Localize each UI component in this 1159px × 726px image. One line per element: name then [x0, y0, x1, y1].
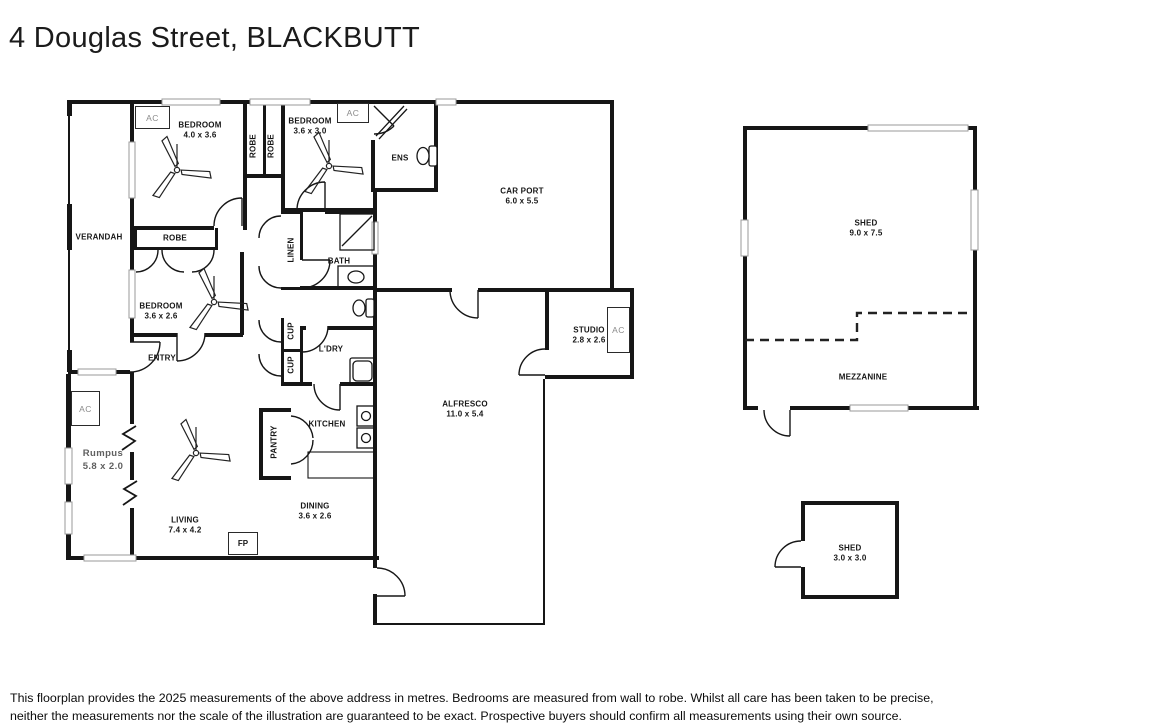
fireplace-box: FP — [228, 532, 258, 555]
room-label-bedroom2: BEDROOM3.6 x 3.0 — [288, 117, 331, 136]
windows — [65, 99, 978, 561]
kitchen-sink — [357, 406, 375, 426]
room-label-pantry: PANTRY — [269, 425, 279, 458]
wall-openings — [122, 426, 137, 505]
room-label-robe2: ROBE — [266, 134, 276, 158]
ac-label: AC — [347, 108, 360, 118]
room-label-cup1: CUP — [286, 322, 296, 340]
room-label-kitchen: KITCHEN — [309, 419, 346, 429]
room-label-laundry: L'DRY — [319, 344, 343, 354]
room-label-robe3: ROBE — [163, 233, 187, 243]
room-label-mezzanine: MEZZANINE — [839, 372, 887, 382]
ceiling-fan-icon — [169, 418, 231, 482]
ac-unit-rumpus: AC — [71, 391, 100, 426]
room-label-bedroom1: BEDROOM4.0 x 3.6 — [178, 121, 221, 140]
room-label-shed-small: SHED3.0 x 3.0 — [834, 544, 867, 563]
room-label-ens: ENS — [391, 153, 408, 163]
kitchen-stove — [357, 428, 375, 448]
ac-unit-studio: AC — [607, 307, 630, 353]
kitchen-bench — [308, 452, 375, 478]
disclaimer-line1: This floorplan provides the 2025 measure… — [10, 690, 1155, 708]
disclaimer: This floorplan provides the 2025 measure… — [10, 690, 1155, 725]
fireplace-label: FP — [238, 539, 248, 548]
floorplan-page: 4 Douglas Street, BLACKBUTT — [0, 0, 1159, 726]
mezzanine-dashed-line — [745, 313, 973, 340]
room-label-studio: STUDIO2.8 x 2.6 — [573, 326, 606, 345]
room-label-living: LIVING7.4 x 4.2 — [169, 516, 202, 535]
room-label-rumpus: Rumpus5.8 x 2.0 — [83, 447, 124, 473]
room-label-robe1: ROBE — [248, 134, 258, 158]
room-label-entry: ENTRY — [148, 353, 176, 363]
room-label-linen: LINEN — [286, 238, 296, 263]
ac-label: AC — [612, 325, 625, 335]
ceiling-fan-icon — [150, 135, 212, 199]
room-label-shed-large: SHED9.0 x 7.5 — [850, 219, 883, 238]
room-label-verandah: VERANDAH — [76, 232, 123, 242]
ac-unit-bedroom2: AC — [337, 103, 369, 123]
wc-toilet — [366, 299, 374, 317]
ac-label: AC — [79, 404, 92, 414]
ac-label: AC — [146, 113, 159, 123]
room-label-bedroom3: BEDROOM3.6 x 2.6 — [139, 302, 182, 321]
room-label-bath: BATH — [328, 256, 350, 266]
floorplan-drawing — [0, 0, 1159, 726]
room-label-alfresco: ALFRESCO11.0 x 5.4 — [442, 400, 488, 419]
door-arcs — [130, 106, 801, 596]
room-label-carport: CAR PORT6.0 x 5.5 — [500, 187, 543, 206]
room-label-cup2: CUP — [286, 356, 296, 374]
disclaimer-line2: neither the measurements nor the scale o… — [10, 708, 1155, 726]
ac-unit-bedroom1: AC — [135, 106, 170, 129]
ens-toilet — [429, 146, 437, 166]
room-label-dining: DINING3.6 x 2.6 — [299, 502, 332, 521]
